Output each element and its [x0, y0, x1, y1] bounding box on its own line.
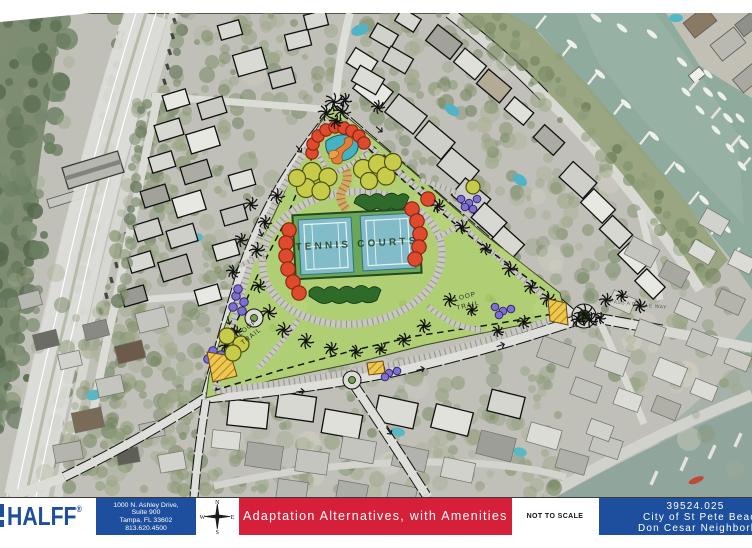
svg-text:S: S	[216, 530, 219, 535]
svg-text:N: N	[215, 500, 220, 506]
svg-text:E: E	[231, 515, 235, 521]
svg-text:W: W	[199, 515, 205, 521]
